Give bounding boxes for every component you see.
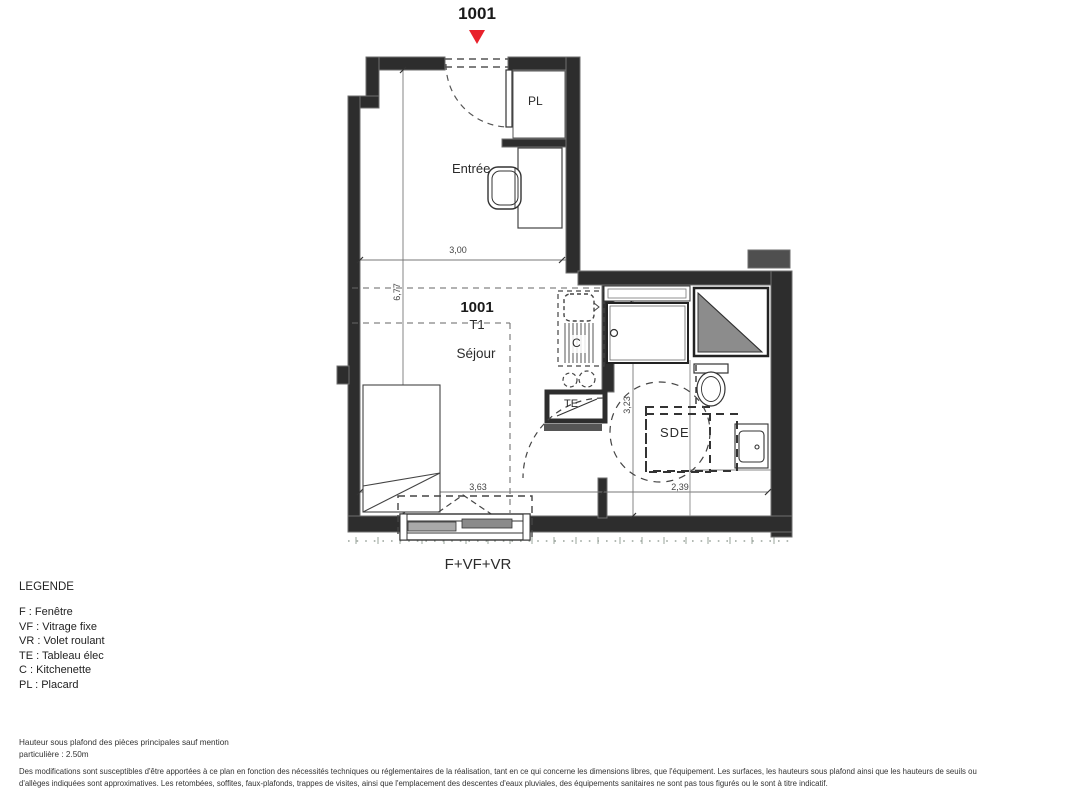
unit-marker-icon bbox=[469, 30, 485, 44]
legend-item: F : Fenêtre bbox=[19, 605, 105, 620]
dimension-sde-height: 3,23 bbox=[622, 390, 632, 420]
floor-plan-page: 1001 PL Entrée 1001 T1 Séjour C TE SDE 3… bbox=[0, 0, 1072, 800]
legend-item: VR : Volet roulant bbox=[19, 634, 105, 649]
ceiling-height-note-cont: particulière : 2.50m bbox=[19, 750, 89, 759]
kitchenette-label: C bbox=[572, 336, 581, 350]
hotplate bbox=[563, 373, 577, 387]
bed bbox=[363, 385, 440, 512]
unit-label: 1001 bbox=[446, 299, 508, 316]
window-type-label: F+VF+VR bbox=[416, 556, 540, 573]
dimension-bottom-right: 2,39 bbox=[658, 482, 702, 492]
disclaimer-line2: d'allèges indiquées sont approximatives.… bbox=[19, 779, 1065, 788]
elec-panel-label: TE bbox=[564, 398, 578, 410]
legend-item: VF : Vitrage fixe bbox=[19, 620, 105, 635]
ceiling-height-note: Hauteur sous plafond des pièces principa… bbox=[19, 738, 229, 747]
floor-plan-drawing bbox=[0, 0, 1072, 800]
unit-number-header: 1001 bbox=[448, 4, 506, 24]
technical-duct bbox=[694, 288, 768, 356]
legend-item: PL : Placard bbox=[19, 678, 105, 693]
closet-label: PL bbox=[528, 94, 543, 108]
legend-item: C : Kitchenette bbox=[19, 663, 105, 678]
washbasin bbox=[735, 424, 768, 468]
disclaimer-line1: Des modifications sont susceptibles d'êt… bbox=[19, 767, 1065, 776]
dimension-bottom-left: 3,63 bbox=[456, 482, 500, 492]
legend-item: TE : Tableau élec bbox=[19, 649, 105, 664]
shower bbox=[604, 286, 690, 363]
entry-cabinet bbox=[518, 148, 562, 228]
washing-machine bbox=[488, 167, 521, 209]
entry-label: Entrée bbox=[452, 161, 490, 176]
toilet bbox=[694, 364, 728, 406]
dimension-left-height: 6,77 bbox=[392, 277, 402, 307]
dimension-top-width: 3,00 bbox=[436, 245, 480, 255]
legend-list: F : Fenêtre VF : Vitrage fixe VR : Volet… bbox=[19, 605, 105, 693]
shower-room-label: SDE bbox=[660, 425, 690, 440]
entry-door bbox=[445, 59, 512, 127]
kitchenette bbox=[558, 291, 604, 387]
unit-type-label: T1 bbox=[446, 317, 508, 332]
legend-title: LEGENDE bbox=[19, 581, 74, 593]
living-room-label: Séjour bbox=[438, 346, 514, 361]
sink bbox=[564, 294, 594, 321]
hotplate bbox=[579, 371, 595, 387]
